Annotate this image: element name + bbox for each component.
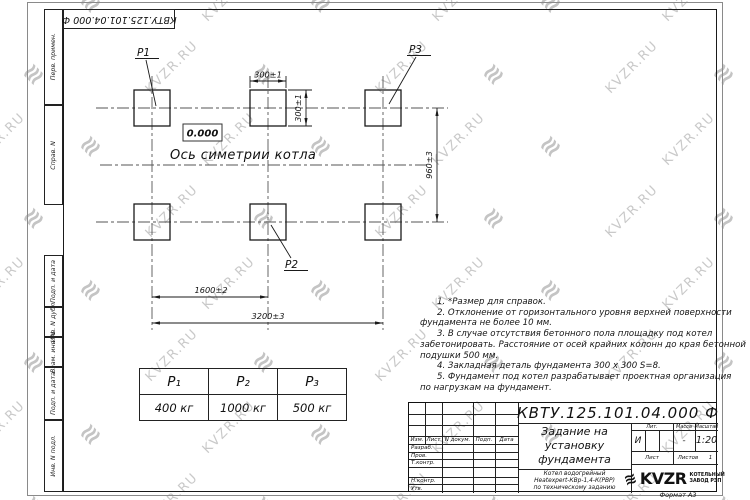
technical-notes: 1. *Размер для справок. 2. Отклонение от… xyxy=(420,297,722,393)
tb-title-line: фундамента xyxy=(538,453,611,467)
tb-lit-label: Лит. xyxy=(631,423,673,430)
tb-col-dokum: N докум. xyxy=(442,436,473,444)
tb-mass-label: Масса xyxy=(673,423,695,430)
loads-table: P₁ P₂ P₃ 400 кг 1000 кг 500 кг xyxy=(139,368,347,421)
tb-line xyxy=(645,430,646,451)
tb-row-prov: Пров. xyxy=(409,452,442,459)
title-block: Изм. Лист N докум. Подп. Дата Разраб. Пр… xyxy=(408,402,717,492)
tb-doc-number: КВТУ.125.101.04.000 Ф xyxy=(518,403,718,423)
tb-line xyxy=(409,414,518,415)
tb-title: Задание на установку фундамента xyxy=(518,423,631,469)
tb-line xyxy=(409,425,518,426)
tb-line xyxy=(659,430,660,451)
load-value-p3: 500 кг xyxy=(278,395,347,421)
doc-number-top: КВТУ.125.101.04.000 Ф xyxy=(62,14,177,25)
note-line: подушки 500 мм. xyxy=(420,351,722,362)
tb-sheet-label: Лист xyxy=(631,451,673,464)
note-line: фундамента не более 10 мм. xyxy=(420,318,722,329)
tb-col-data: Дата xyxy=(495,436,518,444)
tb-col-izm: Изм. xyxy=(409,436,425,444)
tb-product-line: по техническому заданию xyxy=(534,485,616,492)
loads-value-row: 400 кг 1000 кг 500 кг xyxy=(140,395,347,421)
kvzr-logo-subtitle: КОТЕЛЬНЫЙ ЗАВОД РЭП xyxy=(690,473,725,484)
load-header-p3: P₃ xyxy=(278,369,347,395)
tb-product-line: Котел водогрейный xyxy=(544,471,606,478)
load-value-p1: 400 кг xyxy=(140,395,209,421)
tb-row-nkontr: Н.контр. xyxy=(409,477,442,484)
strip-label: Инв. N подл. xyxy=(50,435,57,477)
drawing-sheet: KVZR.RU≋KVZR.RU≋KVZR.RU≋KVZR.RU≋KVZR.RU≋… xyxy=(0,0,750,500)
note-line: 1. *Размер для справок. xyxy=(420,297,722,308)
loads-header-row: P₁ P₂ P₃ xyxy=(140,369,347,395)
left-margin-strips: Перв. примен. Справ. N Подп. и дата Инв.… xyxy=(44,9,63,492)
tb-row-blank xyxy=(409,467,442,477)
tb-row-razrab: Разраб. xyxy=(409,444,442,452)
tb-sheets-label: Листов xyxy=(673,451,703,464)
strip-perv-primen: Перв. примен. xyxy=(44,9,63,105)
tb-product-line: Heatexpert-КВр-1,4-К(РВР) xyxy=(534,478,615,485)
tb-line xyxy=(473,403,474,493)
tb-line xyxy=(495,403,496,493)
tb-row-utv: Утв. xyxy=(409,484,442,493)
strip-sprav-n: Справ. N xyxy=(44,105,63,205)
strip-label: Справ. N xyxy=(50,141,57,170)
load-header-p1: P₁ xyxy=(140,369,209,395)
format-label: Формат А3 xyxy=(640,491,716,499)
load-value-p2: 1000 кг xyxy=(209,395,278,421)
note-line: 4. Закладная деталь фундамента 300 x 300… xyxy=(420,361,722,372)
strip-label: Подп. и дата xyxy=(50,372,57,415)
tb-scale-label: Масштаб xyxy=(695,423,718,430)
tb-title-line: установку xyxy=(545,439,604,453)
watermark-text: KVZR.RU xyxy=(0,398,28,457)
kvzr-logo-subtitle-line: ЗАВОД РЭП xyxy=(690,479,725,485)
doc-number-top-box: КВТУ.125.101.04.000 Ф xyxy=(63,9,175,29)
strip-inv-podl: Инв. N подл. xyxy=(44,420,63,492)
watermark-text: KVZR.RU xyxy=(0,0,28,25)
note-line: 3. В случае отсутствия бетонного пола пл… xyxy=(420,329,722,340)
strip-podp-data-1: Подп. и дата xyxy=(44,255,63,307)
tb-line xyxy=(442,403,443,493)
tb-lit-value: И xyxy=(631,430,645,451)
tb-scale-value: 1:20 xyxy=(695,430,718,451)
watermark-text: KVZR.RU xyxy=(0,254,28,313)
strip-podp-data-2: Подп. и дата xyxy=(44,367,63,420)
kvzr-logo-text: KVZR xyxy=(640,469,687,488)
note-line: 2. Отклонение от горизонтального уровня … xyxy=(420,308,722,319)
note-line: по нагрузкам на фундамент. xyxy=(420,383,722,394)
tb-title-line: Задание на xyxy=(541,425,608,439)
note-line: забетонировать. Расстояние от осей крайн… xyxy=(420,340,722,351)
strip-label: Перв. примен. xyxy=(50,33,57,80)
tb-col-podp: Подп. xyxy=(473,436,495,444)
tb-mass-value: - xyxy=(673,430,695,451)
strip-label: Подп. и дата xyxy=(50,260,57,303)
note-line: 5. Фундамент под котел разрабатывает про… xyxy=(420,372,722,383)
tb-row-tkontr: Т.контр. xyxy=(409,459,442,467)
tb-sheets-value: 1 xyxy=(703,451,718,464)
watermark-text: KVZR.RU xyxy=(0,110,28,169)
load-header-p2: P₂ xyxy=(209,369,278,395)
tb-logo: ≋ KVZR КОТЕЛЬНЫЙ ЗАВОД РЭП xyxy=(631,464,718,493)
tb-col-list: Лист xyxy=(425,436,442,444)
strip-vzam-inv: Взам. инв. N xyxy=(44,337,63,367)
tb-product: Котел водогрейный Heatexpert-КВр-1,4-К(Р… xyxy=(518,469,631,493)
